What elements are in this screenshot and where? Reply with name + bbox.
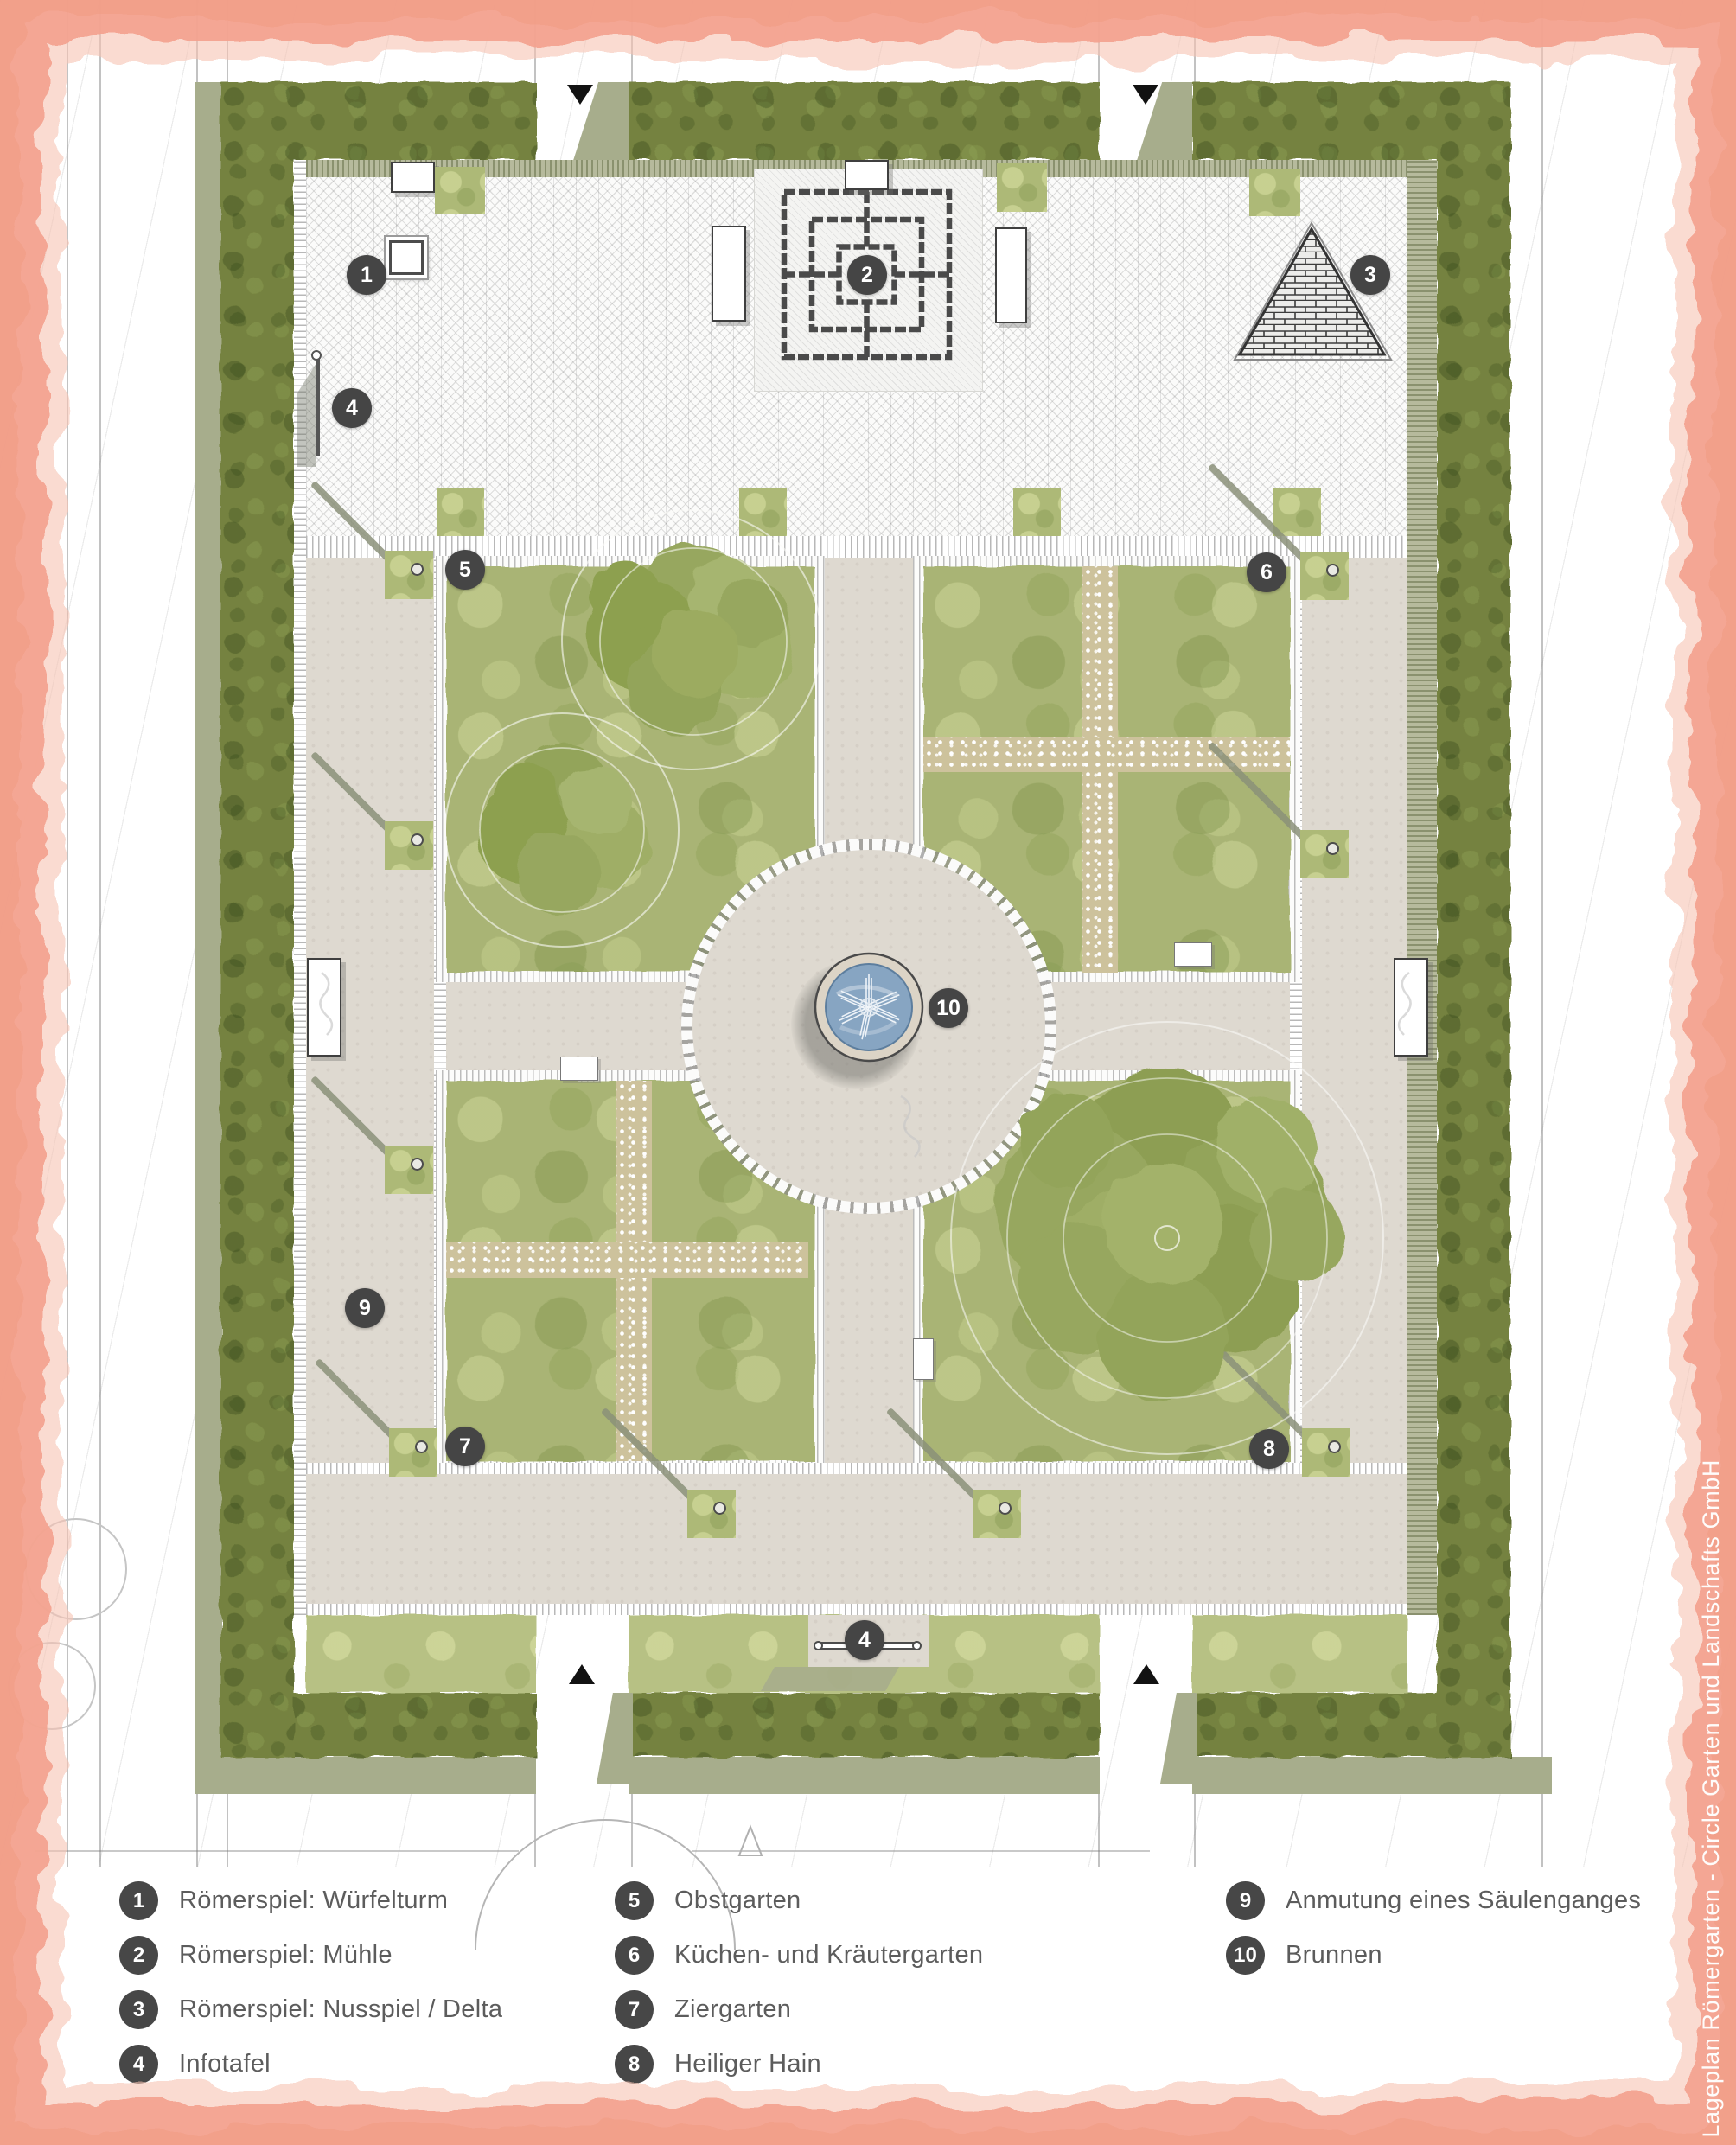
legend-number: 3 [133, 1998, 144, 2022]
legend-number-badge: 7 [615, 1990, 654, 2029]
legend-number: 6 [629, 1944, 640, 1968]
column-square [1302, 1428, 1350, 1477]
plate [1174, 942, 1212, 967]
infoboard-west [316, 357, 320, 456]
legend-label: Ziergarten [674, 1995, 791, 2024]
legend-number: 1 [133, 1889, 144, 1913]
legend-number-badge: 5 [615, 1881, 654, 1920]
hedge-west [220, 82, 294, 1757]
plan-marker: 8 [1249, 1429, 1289, 1469]
entrance-arrow-icon [569, 1664, 595, 1684]
entrance-arrow-icon [1133, 85, 1158, 105]
legend-label: Infotafel [179, 2050, 271, 2078]
bench [845, 160, 889, 190]
marker-number: 10 [936, 996, 961, 1021]
hedge-north [629, 82, 1100, 160]
column-square [1300, 552, 1349, 600]
road-line [692, 1850, 1150, 1852]
legend-item: 6 Küchen- und Kräutergarten [615, 1936, 983, 1975]
legend-number-badge: 10 [1226, 1936, 1265, 1975]
entrance-path-line [534, 0, 536, 83]
planter-square [1013, 488, 1061, 536]
lawn-strip [1192, 1615, 1407, 1693]
bench [307, 958, 341, 1057]
legend-number-badge: 8 [615, 2045, 654, 2084]
plan-credit: Lageplan Römergarten - Circle Garten und… [1698, 1459, 1725, 2138]
legend-number-badge: 4 [119, 2045, 158, 2084]
legend-item: 8 Heiliger Hain [615, 2045, 821, 2084]
legend-label: Anmutung eines Säulenganges [1286, 1886, 1641, 1915]
entrance-path-line [631, 0, 633, 83]
plan-marker: 4 [845, 1620, 884, 1660]
planter-square [997, 163, 1047, 212]
entrance-arrow-icon [567, 85, 593, 105]
plan-marker: 10 [929, 988, 968, 1028]
hedge-shadow-west [195, 82, 222, 1794]
legend-label: Römerspiel: Nusspiel / Delta [179, 1995, 502, 2024]
legend-number: 4 [133, 2052, 144, 2077]
edge-strip-west [294, 160, 306, 1615]
marker-number: 7 [459, 1434, 471, 1459]
lawn-strip [306, 1615, 536, 1693]
legend-item: 9 Anmutung eines Säulenganges [1226, 1881, 1641, 1920]
plan-marker: 4 [332, 388, 372, 428]
legend-item: 1 Römerspiel: Würfelturm [119, 1881, 448, 1920]
plan-marker: 3 [1350, 255, 1390, 295]
plan-marker: 2 [847, 255, 887, 295]
wuerfelturm [389, 240, 424, 275]
infoboard-post [814, 1641, 823, 1650]
legend-number: 10 [1234, 1944, 1257, 1968]
column-square [687, 1490, 736, 1538]
planter-square [1249, 169, 1300, 216]
plan-marker: 5 [445, 550, 485, 590]
plan-marker: 1 [347, 255, 386, 295]
bench [1394, 958, 1428, 1057]
road-line [67, 0, 68, 1867]
planter-square [739, 488, 787, 536]
legend-item: 5 Obstgarten [615, 1881, 801, 1920]
marker-number: 2 [861, 263, 873, 288]
site-plan-canvas: 1 2 3 4 5 6 7 8 9 10 4 Lageplan Römergar… [0, 0, 1736, 2145]
hedge-east [1437, 82, 1510, 1757]
walkway-strip [306, 1604, 1407, 1615]
marker-number: 8 [1263, 1437, 1275, 1462]
legend-number: 5 [629, 1889, 640, 1913]
road-line [1541, 0, 1543, 1867]
hedge-shadow-south [629, 1757, 1100, 1794]
legend-number: 8 [629, 2052, 640, 2077]
legend-number-badge: 1 [119, 1881, 158, 1920]
legend-item: 4 Infotafel [119, 2045, 271, 2084]
legend-number-badge: 6 [615, 1936, 654, 1975]
entrance-path-line [1098, 1794, 1100, 1867]
entrance-path-line [1098, 0, 1100, 83]
legend-number-badge: 2 [119, 1936, 158, 1975]
column-square [385, 1146, 433, 1194]
road-line [99, 0, 101, 1867]
legend-label: Römerspiel: Würfelturm [179, 1886, 448, 1915]
legend-item: 10 Brunnen [1226, 1936, 1382, 1975]
marker-number: 9 [359, 1296, 371, 1321]
column-square [973, 1490, 1021, 1538]
infoboard-post [912, 1641, 922, 1650]
legend-number: 9 [1240, 1889, 1251, 1913]
legend-item: 3 Römerspiel: Nusspiel / Delta [119, 1990, 502, 2029]
legend-number: 2 [133, 1944, 144, 1968]
planter-square [435, 167, 485, 214]
column-square [385, 821, 433, 870]
fountain-shadow [791, 960, 921, 1089]
planter-square [1273, 488, 1321, 536]
legend-label: Küchen- und Kräutergarten [674, 1941, 983, 1969]
plan-marker: 9 [345, 1288, 385, 1328]
hedge-shadow-south [220, 1757, 536, 1794]
marker-number: 5 [459, 558, 471, 583]
bench [391, 162, 435, 193]
entrance-path-line [534, 1794, 536, 1867]
legend-label: Brunnen [1286, 1941, 1382, 1969]
bench [995, 227, 1027, 323]
entrance-path-line [631, 1794, 633, 1867]
entrance-path-line [1194, 0, 1196, 83]
column-square [389, 1428, 437, 1477]
marker-number: 4 [346, 396, 358, 421]
marker-number: 3 [1364, 263, 1376, 288]
legend-number-badge: 9 [1226, 1881, 1265, 1920]
legend-item: 2 Römerspiel: Mühle [119, 1936, 393, 1975]
entrance-path-line [1194, 1794, 1196, 1867]
legend-number-badge: 3 [119, 1990, 158, 2029]
legend-label: Römerspiel: Mühle [179, 1941, 393, 1969]
legend-label: Obstgarten [674, 1886, 801, 1915]
marker-number: 1 [361, 263, 373, 288]
plate [913, 1338, 934, 1380]
legend-item: 7 Ziergarten [615, 1990, 791, 2029]
column-square [385, 551, 433, 599]
road-line [35, 1850, 519, 1852]
column-square [1300, 830, 1349, 878]
marker-number: 6 [1261, 560, 1273, 585]
plan-marker: 6 [1247, 552, 1286, 592]
gravel-path [446, 1242, 808, 1278]
hedge-shadow-south [1192, 1757, 1552, 1794]
planter-square [437, 488, 484, 536]
marker-number: 4 [858, 1628, 871, 1653]
legend-number: 7 [629, 1998, 640, 2022]
inner-band-east [1407, 160, 1437, 1615]
legend-label: Heiliger Hain [674, 2050, 821, 2078]
infoboard-post [311, 350, 322, 361]
infoboard-shadow [761, 1667, 899, 1691]
hedge-south [629, 1693, 1100, 1757]
plan-marker: 7 [445, 1427, 485, 1466]
bench [712, 226, 746, 322]
entrance-arrow-icon [1133, 1664, 1159, 1684]
plate [560, 1057, 598, 1081]
